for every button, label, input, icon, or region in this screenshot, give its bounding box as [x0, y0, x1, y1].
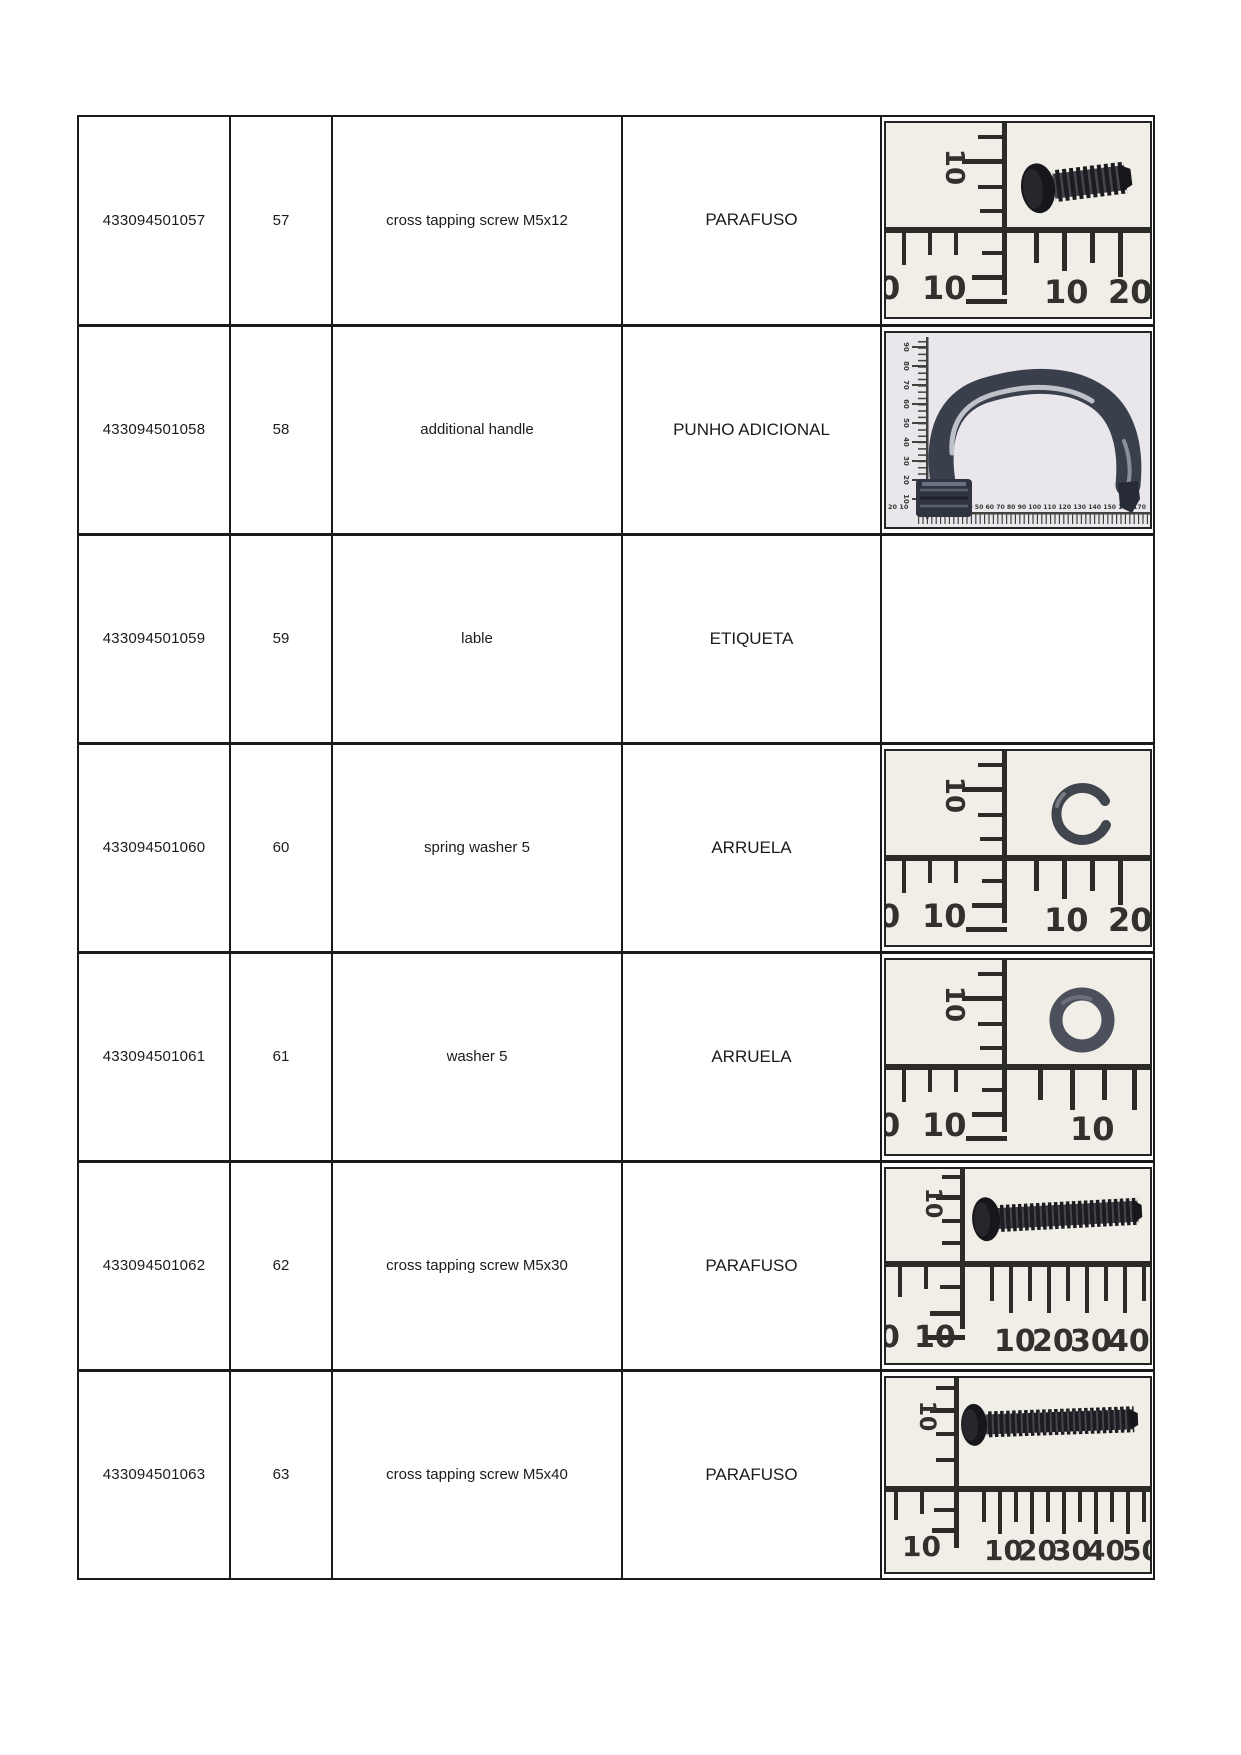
ruler-number: 10 — [939, 985, 969, 1021]
ruler-number: 90 — [902, 342, 910, 352]
description-pt-cell: PUNHO ADICIONAL — [622, 325, 881, 534]
spring-washer-image — [1056, 787, 1106, 839]
part-index: 60 — [273, 839, 290, 856]
part-photo-cell: 10 0 10 10 20 — [881, 743, 1154, 952]
part-photo-cell: 90 80 70 60 50 40 30 20 10 20 10 10 20 3… — [881, 325, 1154, 534]
document-page: 433094501057 57 cross tapping screw M5x1… — [0, 0, 1241, 1755]
part-code: 433094501060 — [103, 839, 206, 856]
description-pt: PARAFUSO — [705, 1256, 797, 1275]
ruler-number: 40 — [1086, 1534, 1125, 1567]
description-en: lable — [461, 630, 493, 647]
ruler-number: 40 — [1108, 1324, 1150, 1359]
table-row: 433094501060 60 spring washer 5 ARRUELA — [78, 743, 1154, 952]
handle-photo-svg: 90 80 70 60 50 40 30 20 10 20 10 10 20 3… — [886, 333, 1150, 527]
part-photo-cell: 10 0 10 10 — [881, 952, 1154, 1161]
description-en: spring washer 5 — [424, 839, 530, 856]
part-code: 433094501059 — [103, 630, 206, 647]
part-index: 59 — [273, 630, 290, 647]
part-code-cell: 433094501059 — [78, 534, 230, 743]
ruler-number: 10 — [922, 897, 967, 935]
ruler-number: 60 — [902, 399, 910, 409]
description-pt: ARRUELA — [711, 838, 791, 857]
washer-image — [1056, 994, 1108, 1046]
screw-photo-svg: 10 0 10 10 20 — [886, 123, 1150, 317]
description-en: cross tapping screw M5x30 — [386, 1257, 568, 1274]
ruler-number: 10 — [922, 269, 967, 307]
description-pt: ETIQUETA — [710, 629, 794, 648]
description-en: cross tapping screw M5x12 — [386, 212, 568, 229]
washer-photo-svg: 10 0 10 10 — [886, 960, 1150, 1154]
ruler-number: 0 — [886, 1106, 900, 1144]
part-index-cell: 57 — [230, 116, 332, 325]
description-en-cell: additional handle — [332, 325, 622, 534]
table-row: 433094501061 61 washer 5 ARRUELA — [78, 952, 1154, 1161]
ruler-number: 20 — [1108, 901, 1150, 939]
screw-photo-svg: 10 0 10 10 20 30 40 — [886, 1169, 1150, 1363]
description-en-cell: washer 5 — [332, 952, 622, 1161]
part-index: 61 — [273, 1048, 290, 1065]
part-code-cell: 433094501063 — [78, 1370, 230, 1579]
part-photo-cell-empty — [881, 534, 1154, 743]
ruler-number: 30 — [1070, 1324, 1112, 1359]
screw-photo-svg: 10 10 10 20 30 40 50 — [886, 1378, 1150, 1572]
ruler-number: 0 — [886, 269, 900, 307]
table-row: 433094501062 62 cross tapping screw M5x3… — [78, 1161, 1154, 1370]
description-pt-cell: ARRUELA — [622, 743, 881, 952]
ruler-number: 70 — [902, 380, 910, 390]
ruler-number: 80 — [902, 361, 910, 371]
part-code: 433094501058 — [103, 421, 206, 438]
description-pt-cell: PARAFUSO — [622, 1161, 881, 1370]
description-pt: PARAFUSO — [705, 1465, 797, 1484]
part-index-cell: 58 — [230, 325, 332, 534]
description-pt: ARRUELA — [711, 1047, 791, 1066]
description-pt-cell: PARAFUSO — [622, 1370, 881, 1579]
description-pt-cell: ETIQUETA — [622, 534, 881, 743]
part-index: 58 — [273, 421, 290, 438]
ruler-number: 10 — [914, 1400, 939, 1431]
ruler-number: 10 — [922, 1106, 967, 1144]
table-row: 433094501058 58 additional handle PUNHO … — [78, 325, 1154, 534]
ruler-number: 20 — [1108, 273, 1150, 311]
screw-image — [1018, 152, 1134, 215]
part-index-cell: 61 — [230, 952, 332, 1161]
description-pt: PARAFUSO — [705, 210, 797, 229]
part-code-cell: 433094501057 — [78, 116, 230, 325]
description-pt: PUNHO ADICIONAL — [673, 420, 830, 439]
part-code-cell: 433094501062 — [78, 1161, 230, 1370]
part-photo: 10 0 10 10 — [884, 958, 1152, 1156]
part-index-cell: 60 — [230, 743, 332, 952]
ruler-number: 20 10 — [888, 503, 909, 511]
description-en-cell: spring washer 5 — [332, 743, 622, 952]
ruler-number: 0 — [886, 1320, 900, 1355]
ruler-number: 10 — [914, 1320, 956, 1355]
ruler-number: 10 — [920, 1187, 945, 1218]
ruler-number: 10 — [939, 776, 969, 812]
table-row: 433094501057 57 cross tapping screw M5x1… — [78, 116, 1154, 325]
spring-washer-photo-svg: 10 0 10 10 20 — [886, 751, 1150, 945]
description-en: additional handle — [420, 421, 533, 438]
part-index: 62 — [273, 1257, 290, 1274]
part-photo: 10 0 10 10 20 — [884, 121, 1152, 319]
ruler-number: 10 — [1044, 901, 1089, 939]
part-index-cell: 62 — [230, 1161, 332, 1370]
ruler-number: 10 — [994, 1324, 1036, 1359]
ruler-number: 0 — [886, 897, 900, 935]
ruler-number: 50 — [1122, 1534, 1150, 1567]
part-index: 63 — [273, 1466, 290, 1483]
part-code-cell: 433094501060 — [78, 743, 230, 952]
description-en: cross tapping screw M5x40 — [386, 1466, 568, 1483]
table-row: 433094501063 63 cross tapping screw M5x4… — [78, 1370, 1154, 1579]
handle-image — [916, 381, 1140, 517]
part-photo-cell: 10 0 10 10 20 30 40 — [881, 1161, 1154, 1370]
description-pt-cell: PARAFUSO — [622, 116, 881, 325]
part-code: 433094501062 — [103, 1257, 206, 1274]
description-en-cell: lable — [332, 534, 622, 743]
part-photo: 10 10 10 20 30 40 50 — [884, 1376, 1152, 1574]
part-photo-cell: 10 10 10 20 30 40 50 — [881, 1370, 1154, 1579]
screw-image — [970, 1189, 1142, 1242]
parts-table: 433094501057 57 cross tapping screw M5x1… — [77, 115, 1155, 1580]
ruler-number: 50 — [902, 418, 910, 428]
part-photo: 10 0 10 10 20 — [884, 749, 1152, 947]
ruler-number: 30 — [902, 456, 910, 466]
description-en-cell: cross tapping screw M5x30 — [332, 1161, 622, 1370]
part-photo: 90 80 70 60 50 40 30 20 10 20 10 10 20 3… — [884, 331, 1152, 529]
screw-image — [960, 1398, 1138, 1446]
table-row: 433094501059 59 lable ETIQUETA — [78, 534, 1154, 743]
description-pt-cell: ARRUELA — [622, 952, 881, 1161]
ruler-number: 10 — [939, 149, 969, 185]
ruler-number: 10 — [1044, 273, 1089, 311]
part-index: 57 — [273, 212, 290, 229]
ruler-number: 10 — [902, 1530, 941, 1563]
ruler-number: 10 — [1070, 1110, 1115, 1148]
part-code: 433094501057 — [103, 212, 206, 229]
part-code: 433094501063 — [103, 1466, 206, 1483]
ruler-number: 20 — [1032, 1324, 1074, 1359]
part-code-cell: 433094501061 — [78, 952, 230, 1161]
part-code: 433094501061 — [103, 1048, 206, 1065]
part-photo: 10 0 10 10 20 30 40 — [884, 1167, 1152, 1365]
description-en: washer 5 — [447, 1048, 508, 1065]
description-en-cell: cross tapping screw M5x40 — [332, 1370, 622, 1579]
part-index-cell: 59 — [230, 534, 332, 743]
part-index-cell: 63 — [230, 1370, 332, 1579]
ruler-number: 40 — [902, 437, 910, 447]
ruler-number: 20 — [902, 475, 910, 485]
description-en-cell: cross tapping screw M5x12 — [332, 116, 622, 325]
part-code-cell: 433094501058 — [78, 325, 230, 534]
part-photo-cell: 10 0 10 10 20 — [881, 116, 1154, 325]
